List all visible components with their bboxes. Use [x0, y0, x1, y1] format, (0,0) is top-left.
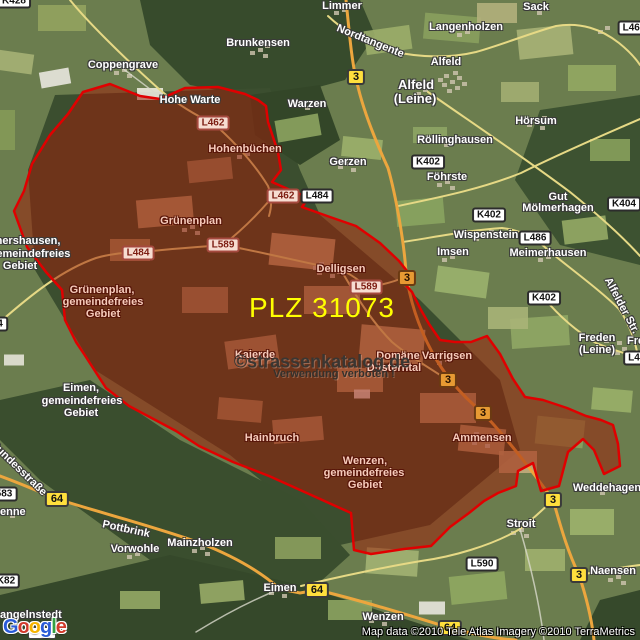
place-label-mainzholzen: Mainzholzen: [167, 538, 232, 550]
place-label-gemeindefreies: gemeindefreies: [0, 249, 70, 261]
road-label-k428: K428: [0, 0, 31, 9]
place-label-weddehagen: Weddehagen: [573, 483, 640, 495]
place-label-gemeindefreies: gemeindefreies: [324, 468, 405, 480]
road-label-k402: K402: [527, 291, 561, 306]
route-badge-3: 3: [439, 372, 457, 388]
road-label-l589: L589: [207, 238, 240, 253]
route-badge-3: 3: [544, 492, 562, 508]
google-logo-letter: g: [40, 616, 51, 638]
route-badge-3: 3: [474, 405, 492, 421]
place-label-hohe-warte: Hohe Warte: [160, 95, 221, 107]
road-label-583: 583: [0, 487, 17, 502]
place-label-warzen: Warzen: [288, 99, 327, 111]
place-label-ammensen: Ammensen: [452, 433, 511, 445]
place-label-alfeld: Alfeld: [398, 78, 434, 92]
route-badge-3: 3: [398, 270, 416, 286]
place-label-f-hrste: Föhrste: [427, 172, 467, 184]
place-label-hershausen: hershausen,: [0, 236, 60, 248]
place-label-hainbruch: Hainbruch: [245, 433, 299, 445]
road-label-l4: L4: [623, 351, 640, 366]
google-logo-letter: o: [29, 616, 40, 638]
place-label-leine: (Leine): [394, 92, 437, 106]
place-label-wenzen: Wenzen,: [343, 456, 387, 468]
place-label-pottbrink: Pottbrink: [101, 519, 151, 540]
road-label-l484: L484: [301, 189, 334, 204]
road-label-l484: L484: [122, 246, 155, 261]
place-label-gebiet: Gebiet: [86, 309, 120, 321]
place-label-gebiet: Gebiet: [64, 408, 98, 420]
road-label-k402: K402: [411, 155, 445, 170]
place-label-gerzen: Gerzen: [329, 157, 366, 169]
road-label-k404: K404: [607, 197, 640, 212]
place-label-hohenb-chen: Hohenbüchen: [208, 144, 281, 156]
place-label-gr-nenplan: Grünenplan,: [70, 285, 135, 297]
place-label-imsen: Imsen: [437, 247, 469, 259]
place-label-alfeld: Alfeld: [431, 57, 462, 69]
route-badge-3: 3: [570, 567, 588, 583]
place-label-wenzen: Wenzen: [362, 612, 403, 624]
road-label-l462: L462: [267, 189, 300, 204]
road-label-k402: K402: [472, 208, 506, 223]
place-label-eimen: Eimen: [263, 583, 296, 595]
place-label-enne: enne: [0, 507, 26, 519]
plz-code-label: PLZ 31073: [249, 292, 395, 324]
place-label-h-rsum: Hörsum: [515, 116, 557, 128]
place-label-gebiet: Gebiet: [348, 480, 382, 492]
place-label-limmer: Limmer: [322, 1, 362, 13]
road-label-l590: L590: [466, 557, 499, 572]
road-label-4: 4: [0, 317, 8, 332]
place-label-naensen: Naensen: [590, 566, 636, 578]
road-label-k82: K82: [0, 574, 20, 589]
google-logo-letter: o: [18, 616, 29, 638]
place-label-nordtangente: Nordtangente: [335, 23, 406, 60]
place-label-gemeindefreies: gemeindefreies: [42, 396, 123, 408]
place-label-brunkensen: Brunkensen: [226, 38, 290, 50]
place-label-langenholzen: Langenholzen: [429, 22, 503, 34]
place-label-alfelder-str: Alfelder Str.: [601, 276, 640, 336]
place-label-wispenstein: Wispenstein: [454, 230, 519, 242]
route-badge-64: 64: [305, 582, 329, 598]
watermark-line2: Verwendung verboten !: [273, 368, 395, 380]
place-label-leine: (Leine): [579, 345, 615, 357]
map-canvas[interactable]: LimmerSackLangenholzenBrunkensenAlfeldCo…: [0, 0, 640, 640]
google-logo-letter: G: [3, 616, 18, 638]
place-label-r-llinghausen: Röllinghausen: [417, 135, 493, 147]
google-logo[interactable]: Google: [3, 616, 66, 639]
place-label-vorwohle: Vorwohle: [111, 544, 160, 556]
route-badge-64: 64: [45, 491, 69, 507]
place-label-fre: Fre: [627, 336, 640, 348]
place-label-eimen: Eimen,: [63, 383, 99, 395]
place-label-delligsen: Delligsen: [317, 264, 366, 276]
map-attribution: Map data ©2010 Tele Atlas Imagery ©2010 …: [362, 626, 635, 638]
road-label-l462: L462: [197, 116, 230, 131]
place-label-m-lmerhagen: Mölmerhagen: [522, 203, 594, 215]
google-logo-letter: e: [56, 616, 66, 638]
place-label-freden: Freden: [579, 333, 616, 345]
place-label-gemeindefreies: gemeindefreies: [63, 297, 144, 309]
place-label-coppengrave: Coppengrave: [88, 60, 158, 72]
road-label-l486: L486: [519, 231, 552, 246]
place-label-varrigsen: Varrigsen: [422, 351, 472, 363]
place-label-stroit: Stroit: [507, 519, 536, 531]
place-label-gr-nenplan: Grünenplan: [160, 216, 222, 228]
place-label-meimerhausen: Meimerhausen: [509, 248, 586, 260]
road-label-l468: L468: [618, 21, 640, 36]
place-label-gebiet: Gebiet: [3, 261, 37, 273]
route-badge-3: 3: [347, 69, 365, 85]
place-label-sack: Sack: [523, 2, 549, 14]
